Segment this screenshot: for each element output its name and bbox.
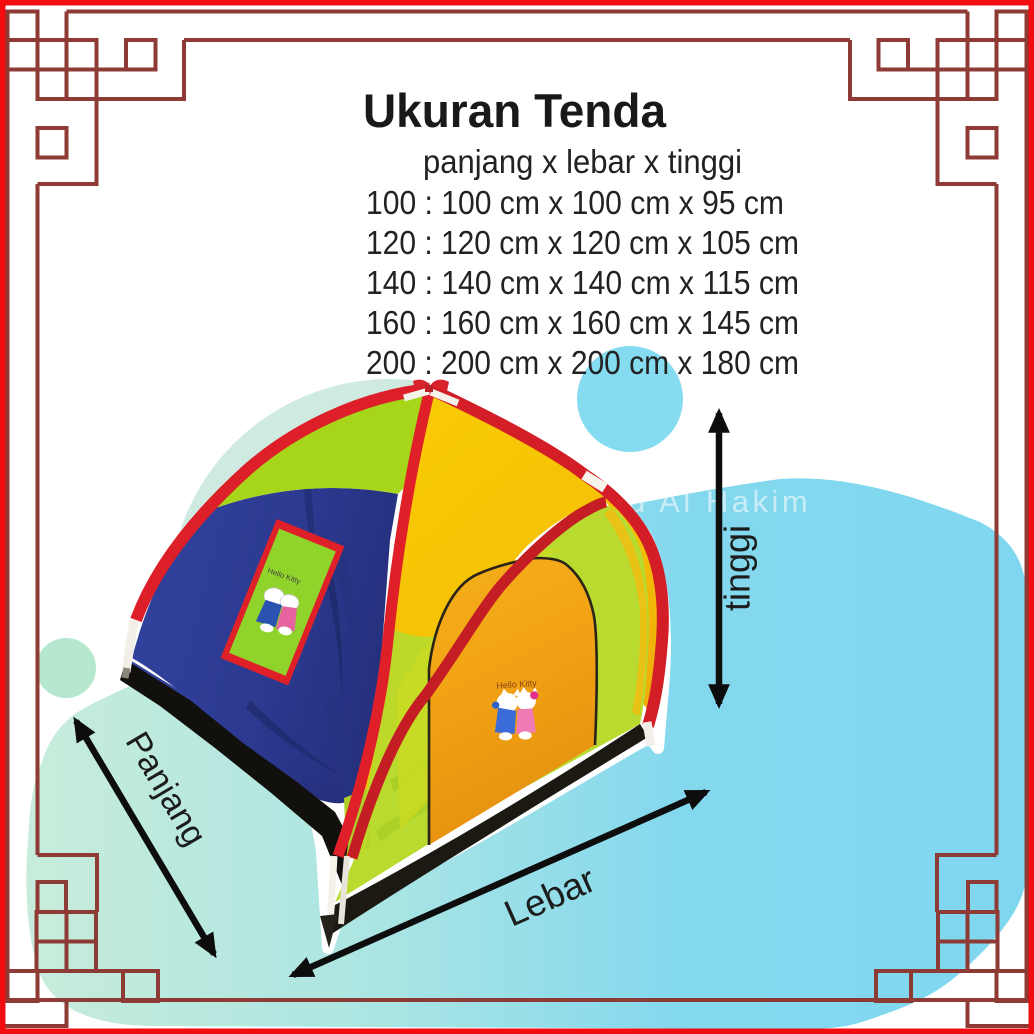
svg-text:tinggi: tinggi [717,525,758,611]
svg-text:100 : 100 cm x 100 cm x 95 cm: 100 : 100 cm x 100 cm x 95 cm [366,184,784,221]
svg-text:200 : 200 cm x 200 cm x 180 cm: 200 : 200 cm x 200 cm x 180 cm [366,344,799,381]
svg-text:panjang x lebar x tinggi: panjang x lebar x tinggi [423,143,742,180]
svg-text:140 : 140 cm x 140 cm x 115 cm: 140 : 140 cm x 140 cm x 115 cm [366,264,799,301]
svg-text:160 : 160 cm x 160 cm x 145 cm: 160 : 160 cm x 160 cm x 145 cm [366,304,799,341]
svg-text:120 : 120 cm x 120 cm x 105 cm: 120 : 120 cm x 120 cm x 105 cm [366,224,799,261]
svg-text:Ukuran Tenda: Ukuran Tenda [363,84,667,137]
